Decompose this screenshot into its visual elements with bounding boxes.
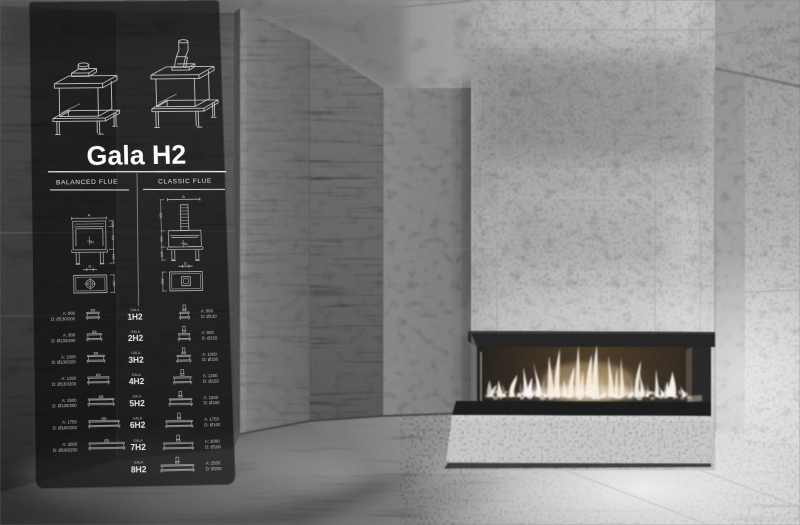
svg-text:600: 600 — [161, 278, 165, 284]
svg-text:D: Ø130/200: D: Ø130/200 — [52, 359, 77, 365]
svg-text:A: A — [88, 214, 91, 218]
svg-text:D: Ø130/200: D: Ø130/200 — [51, 316, 76, 322]
svg-text:6H2: 6H2 — [130, 420, 146, 430]
svg-text:4H2: 4H2 — [129, 377, 145, 387]
svg-text:Ø1: Ø1 — [90, 240, 94, 244]
svg-text:400: 400 — [159, 236, 163, 242]
svg-text:CLASSIC FLUE: CLASSIC FLUE — [158, 178, 212, 186]
svg-text:A: A — [182, 195, 185, 199]
svg-text:D: D — [88, 265, 91, 269]
svg-text:D: Ø130/200: D: Ø130/200 — [51, 338, 76, 344]
svg-text:1H2: 1H2 — [127, 312, 143, 322]
svg-text:D: Ø150: D: Ø150 — [202, 335, 219, 341]
svg-text:400: 400 — [111, 235, 115, 241]
svg-text:D: Ø130/200: D: Ø130/200 — [52, 381, 77, 387]
svg-text:D: Ø150: D: Ø150 — [202, 357, 219, 363]
svg-text:D: Ø150: D: Ø150 — [204, 400, 221, 406]
svg-text:400: 400 — [112, 280, 116, 286]
svg-text:2H2: 2H2 — [128, 333, 144, 343]
svg-text:Ø1: Ø1 — [184, 242, 188, 246]
svg-text:D: Ø150: D: Ø150 — [203, 378, 220, 384]
svg-text:D: Ø130/200: D: Ø130/200 — [52, 403, 77, 409]
svg-text:BALANCED FLUE: BALANCED FLUE — [56, 178, 118, 186]
svg-text:900: 900 — [159, 212, 163, 218]
svg-text:8H2: 8H2 — [131, 464, 147, 474]
svg-text:D: Ø160: D: Ø160 — [205, 444, 222, 450]
svg-text:150: 150 — [111, 221, 115, 227]
svg-text:D: Ø160/250: D: Ø160/250 — [53, 447, 78, 453]
svg-text:D: Ø130: D: Ø130 — [201, 314, 218, 320]
svg-text:D: Ø160: D: Ø160 — [204, 422, 221, 428]
svg-text:Gala H2: Gala H2 — [86, 139, 186, 171]
svg-text:600: 600 — [111, 254, 115, 260]
svg-text:D: D — [184, 262, 187, 266]
svg-text:7H2: 7H2 — [130, 442, 146, 452]
svg-text:D: Ø160/250: D: Ø160/250 — [53, 425, 78, 431]
svg-text:600: 600 — [160, 251, 164, 257]
svg-text:D: Ø200: D: Ø200 — [206, 466, 223, 472]
svg-text:3H2: 3H2 — [128, 355, 144, 365]
svg-text:5H2: 5H2 — [129, 398, 145, 408]
